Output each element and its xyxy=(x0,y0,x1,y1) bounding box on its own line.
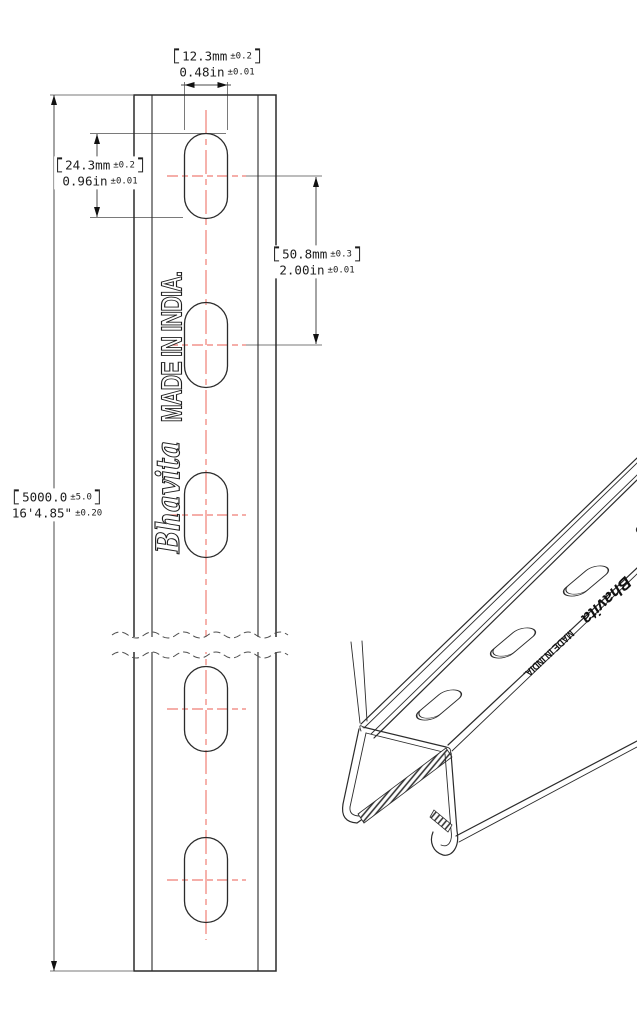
dim-value-imperial: 16'4.85" xyxy=(12,505,72,521)
bracket-left xyxy=(57,158,62,173)
dim-tolerance-imperial: ±0.01 xyxy=(328,263,355,276)
dim-tolerance: ±5.0 xyxy=(70,491,92,504)
dim-slot-width: 12.3mm ±0.2 0.48in ±0.01 xyxy=(171,47,263,80)
dim-overall-length: 5000.0 ±5.0 16'4.85" ±0.20 xyxy=(9,488,105,521)
bracket-left xyxy=(174,49,179,64)
dim-tolerance-imperial: ±0.20 xyxy=(75,506,102,519)
dim-tolerance: ±0.2 xyxy=(113,159,135,172)
bracket-right xyxy=(255,49,260,64)
front-view-brand-logo: Bhavita xyxy=(149,441,187,554)
dim-value: 24.3mm xyxy=(65,157,110,173)
bracket-left xyxy=(14,490,19,505)
dim-value-imperial: 0.48in xyxy=(179,64,224,80)
bracket-left xyxy=(274,247,279,262)
dim-tolerance-imperial: ±0.01 xyxy=(111,174,138,187)
dim-tolerance: ±0.3 xyxy=(330,248,352,261)
front-view-origin-text: MADE IN INDIA. xyxy=(157,272,190,423)
dim-value-imperial: 2.00in xyxy=(279,262,324,278)
dim-slot-spacing: 50.8mm ±0.3 2.00in ±0.01 xyxy=(271,245,363,278)
bracket-right xyxy=(138,158,143,173)
bracket-right xyxy=(355,247,360,262)
dim-value: 50.8mm xyxy=(282,246,327,262)
bracket-right xyxy=(95,490,100,505)
dim-slot-length: 24.3mm ±0.2 0.96in ±0.01 xyxy=(54,156,146,189)
dim-tolerance: ±0.2 xyxy=(230,50,252,63)
dim-value: 12.3mm xyxy=(182,48,227,64)
dim-value-imperial: 0.96in xyxy=(62,173,107,189)
dim-value: 5000.0 xyxy=(22,489,67,505)
iso-view xyxy=(343,458,637,855)
technical-drawing-strut-channel: 12.3mm ±0.2 0.48in ±0.01 24.3mm ±0.2 0.9… xyxy=(0,0,637,1024)
dim-tolerance-imperial: ±0.01 xyxy=(228,65,255,78)
